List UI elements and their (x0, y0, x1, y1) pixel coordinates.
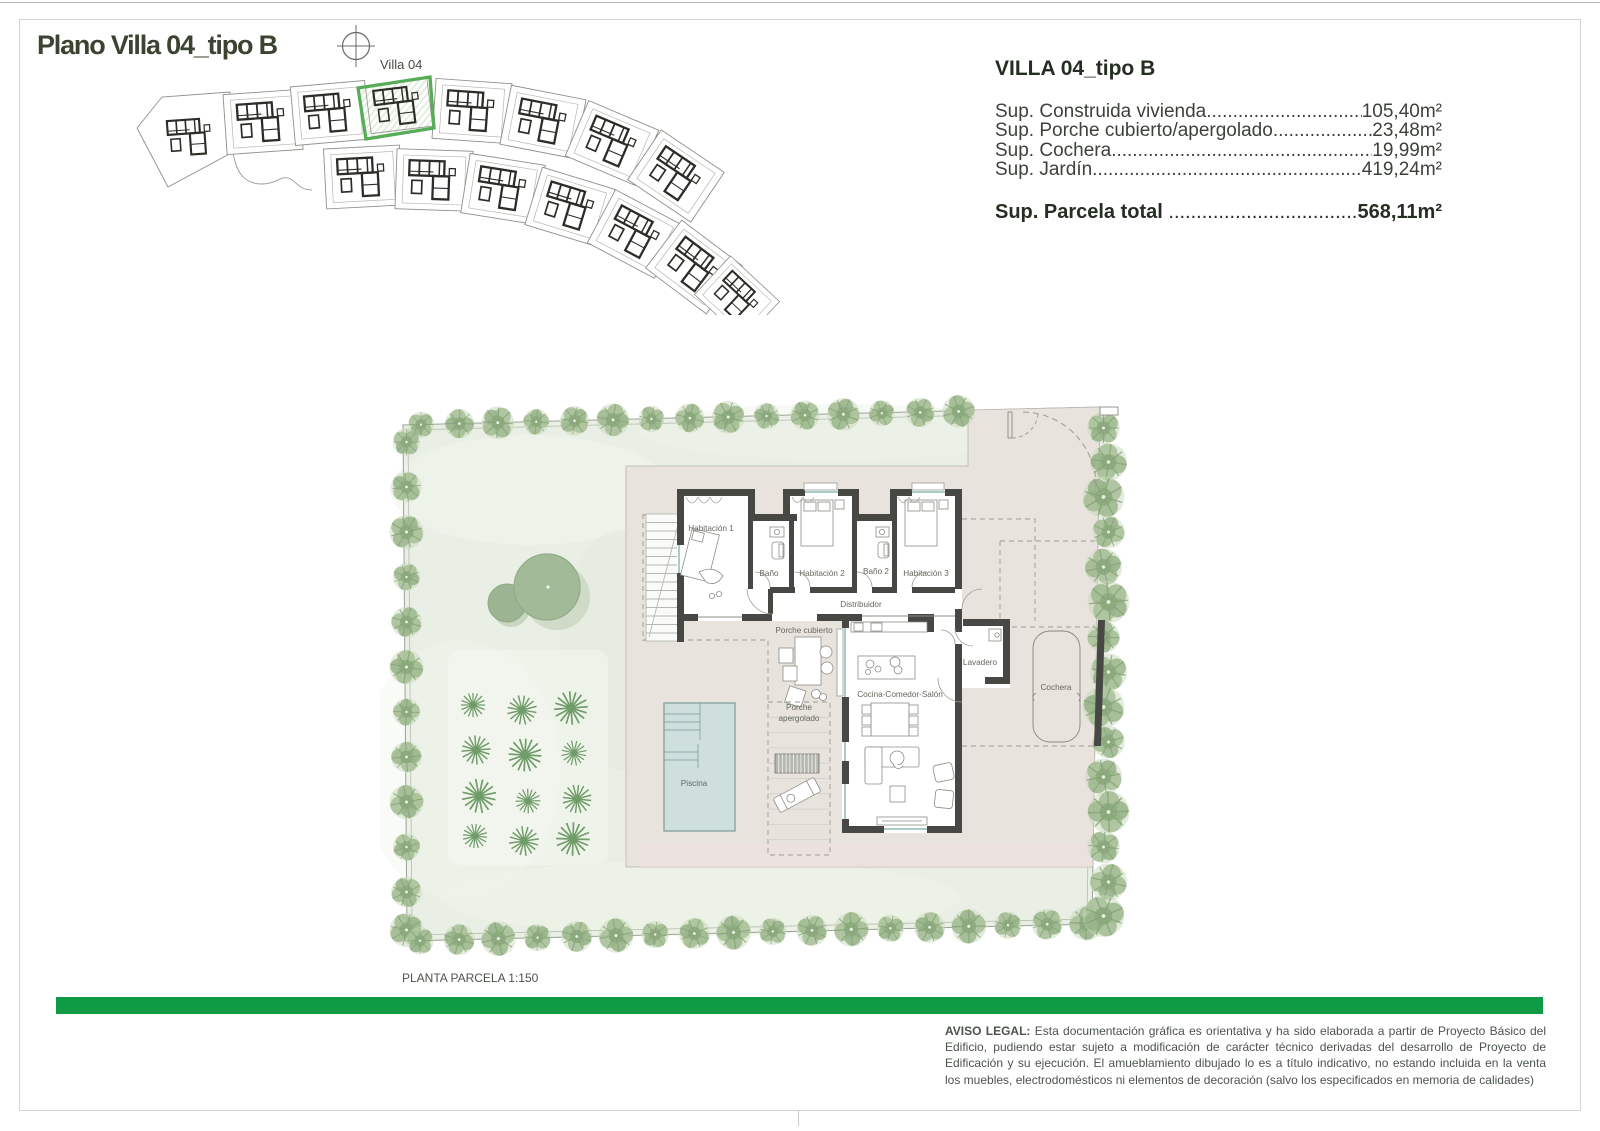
svg-text:Cochera: Cochera (1041, 683, 1072, 692)
svg-text:Porche cubierto: Porche cubierto (775, 626, 833, 635)
svg-text:Distribuidor: Distribuidor (840, 600, 882, 609)
svg-text:Cocina-Comedor-Salón: Cocina-Comedor-Salón (857, 690, 943, 699)
svg-text:apergolado: apergolado (779, 714, 820, 723)
svg-text:Habitación 3: Habitación 3 (903, 569, 949, 578)
svg-text:Habitación 2: Habitación 2 (799, 569, 845, 578)
svg-text:Habitación 1: Habitación 1 (688, 524, 734, 533)
svg-text:Lavadero: Lavadero (963, 658, 998, 667)
svg-text:Porche: Porche (786, 703, 812, 712)
svg-text:Baño 2: Baño 2 (863, 567, 889, 576)
svg-text:Baño: Baño (759, 569, 779, 578)
svg-text:Piscina: Piscina (681, 779, 708, 788)
